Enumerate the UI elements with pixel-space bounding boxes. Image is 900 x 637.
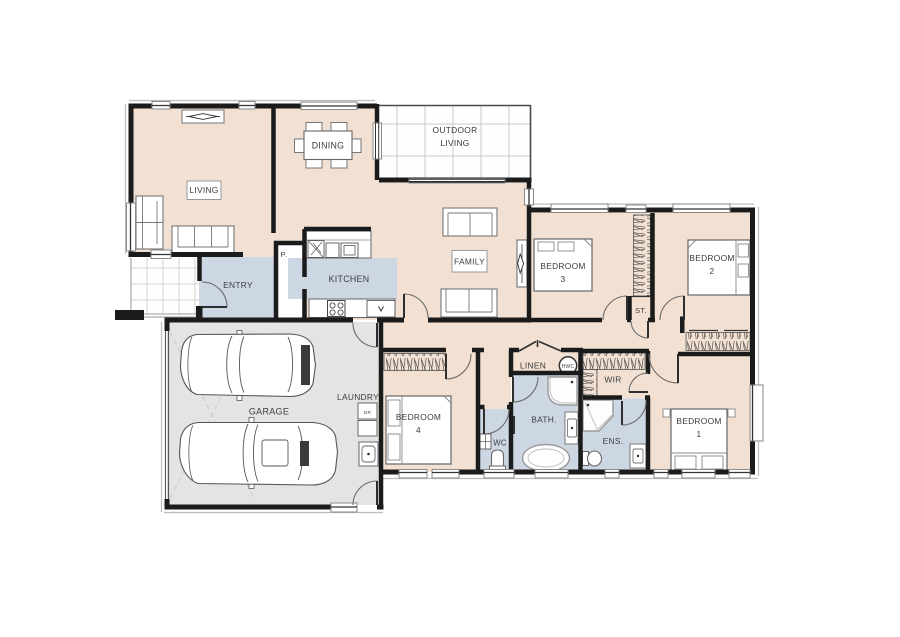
svg-text:WIR: WIR	[604, 375, 621, 385]
svg-text:OUTDOOR: OUTDOOR	[433, 125, 478, 135]
svg-text:DR: DR	[364, 410, 372, 415]
svg-text:BATH.: BATH.	[531, 415, 557, 425]
svg-text:BEDROOM: BEDROOM	[676, 416, 721, 426]
svg-text:P.: P.	[281, 250, 288, 259]
svg-text:LAUNDRY: LAUNDRY	[337, 392, 379, 402]
svg-text:ST.: ST.	[635, 306, 647, 315]
svg-text:HWC: HWC	[562, 364, 575, 370]
svg-text:GARAGE: GARAGE	[249, 407, 289, 417]
svg-text:LIVING: LIVING	[189, 185, 218, 195]
svg-text:ENTRY: ENTRY	[223, 280, 253, 290]
svg-text:ENS.: ENS.	[603, 436, 624, 446]
svg-text:BEDROOM: BEDROOM	[540, 261, 585, 271]
svg-text:FAMILY: FAMILY	[454, 257, 485, 267]
svg-text:3: 3	[561, 274, 566, 284]
svg-text:DINING: DINING	[312, 141, 345, 151]
svg-text:2: 2	[710, 266, 715, 276]
svg-text:KITCHEN: KITCHEN	[329, 274, 370, 284]
svg-text:BEDROOM: BEDROOM	[396, 412, 441, 422]
svg-text:4: 4	[416, 425, 421, 435]
svg-text:LINEN: LINEN	[520, 361, 546, 371]
svg-text:LIVING: LIVING	[440, 138, 469, 148]
svg-text:1: 1	[697, 429, 702, 439]
svg-text:WC: WC	[493, 439, 507, 448]
svg-text:BEDROOM: BEDROOM	[689, 253, 734, 263]
